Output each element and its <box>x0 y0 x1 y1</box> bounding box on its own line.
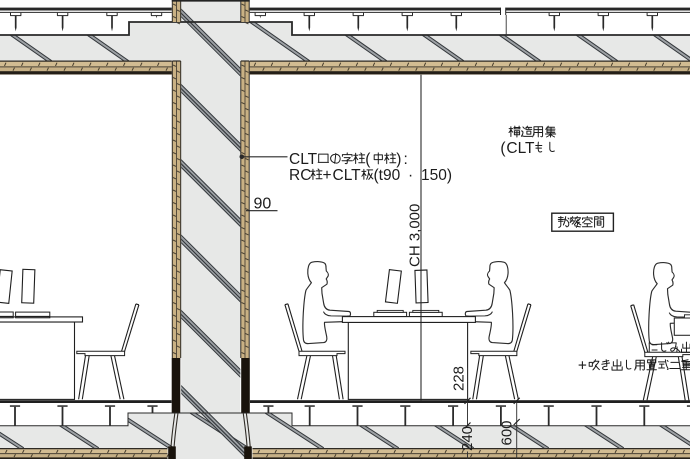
svg-text:CLT: CLT <box>506 140 535 157</box>
svg-text:CLT: CLT <box>289 151 318 168</box>
svg-text:90: 90 <box>254 196 272 213</box>
svg-text:(t90: (t90 <box>374 167 401 184</box>
svg-text:·: · <box>408 167 413 184</box>
svg-text:+: + <box>323 167 332 184</box>
svg-text:240: 240 <box>459 426 476 451</box>
svg-text:228: 228 <box>451 366 468 391</box>
svg-text:): ) <box>396 151 401 168</box>
svg-text::: : <box>404 151 408 168</box>
svg-text:600: 600 <box>498 420 515 445</box>
svg-text:+: + <box>578 358 587 375</box>
svg-text:(: ( <box>365 151 371 168</box>
svg-text:CLT: CLT <box>333 167 362 184</box>
svg-text:CH 3,000: CH 3,000 <box>406 204 423 267</box>
svg-text:RC: RC <box>289 167 311 184</box>
svg-text:150): 150) <box>421 167 452 184</box>
